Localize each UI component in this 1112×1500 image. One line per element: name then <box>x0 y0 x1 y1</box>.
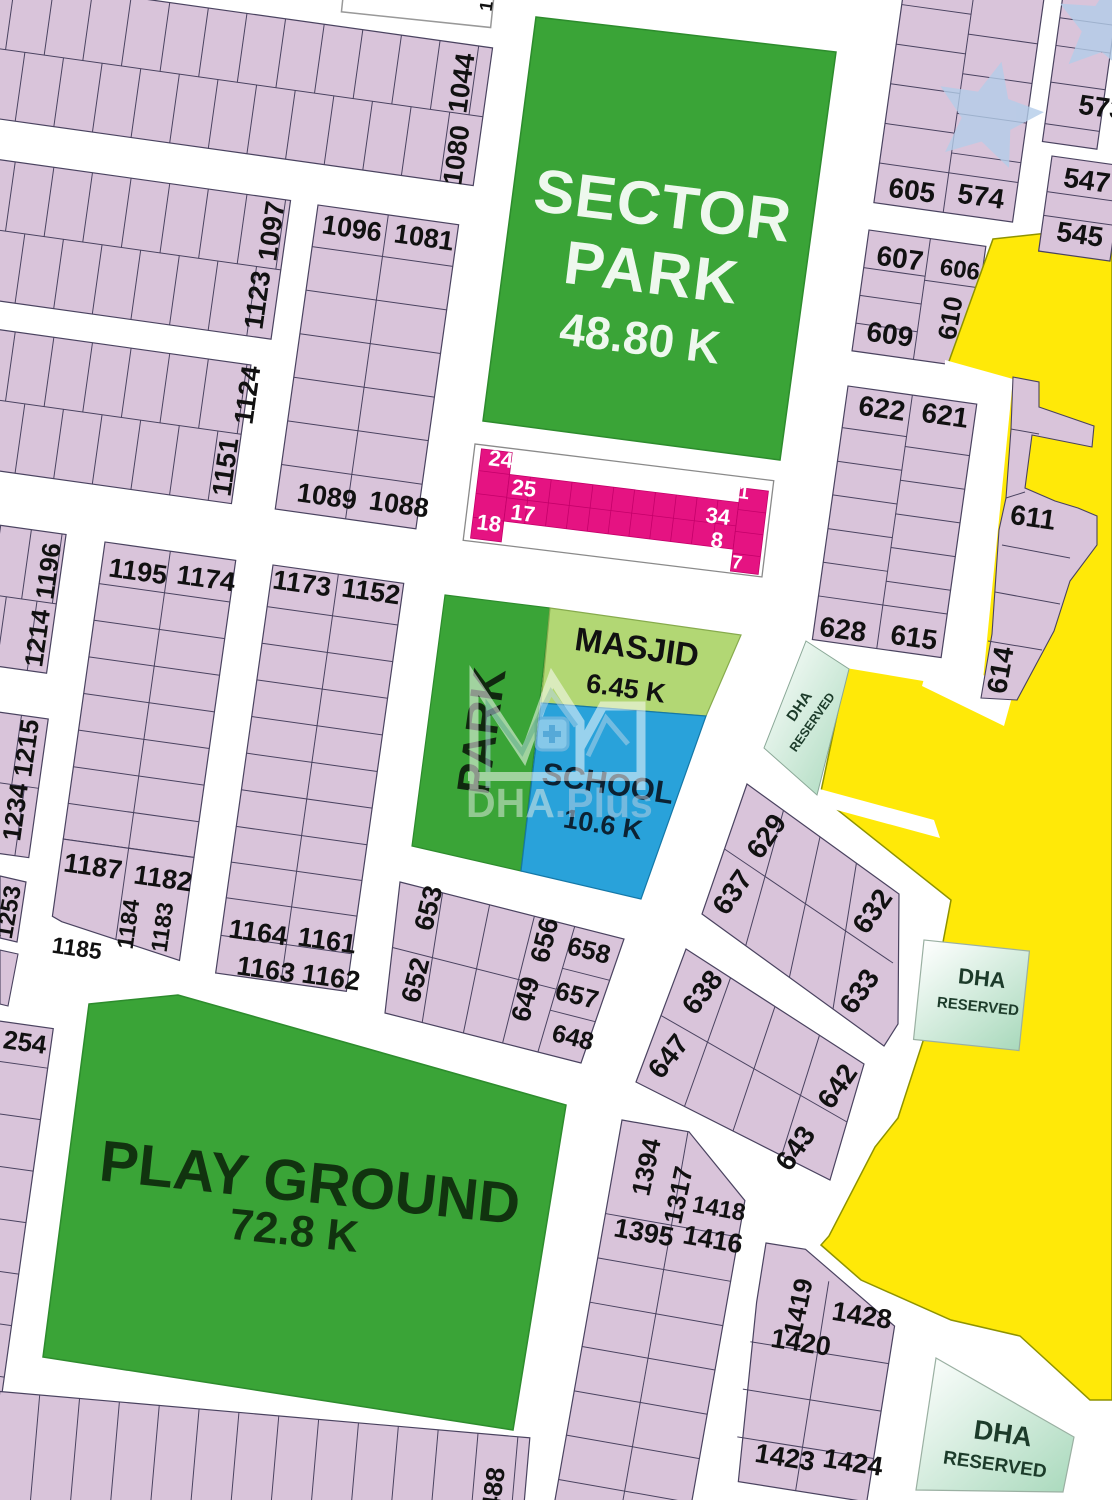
svg-text:606: 606 <box>938 254 981 286</box>
svg-text:607: 607 <box>875 240 926 277</box>
svg-text:611: 611 <box>1008 499 1057 536</box>
svg-text:DHA: DHA <box>957 963 1007 993</box>
svg-text:615: 615 <box>889 619 940 656</box>
svg-text:24: 24 <box>487 445 515 473</box>
svg-text:254: 254 <box>1 1024 49 1060</box>
svg-text:545: 545 <box>1055 216 1106 253</box>
svg-text:622: 622 <box>857 390 908 427</box>
svg-text:574: 574 <box>956 178 1007 215</box>
svg-text:628: 628 <box>818 611 869 648</box>
svg-text:18: 18 <box>475 509 502 537</box>
svg-text:547: 547 <box>1062 162 1112 199</box>
svg-text:609: 609 <box>865 316 916 353</box>
svg-text:34: 34 <box>704 502 732 530</box>
svg-text:621: 621 <box>920 397 971 434</box>
svg-text:605: 605 <box>887 172 938 209</box>
svg-text:DHA.Plus: DHA.Plus <box>466 780 653 826</box>
svg-text:17: 17 <box>509 499 536 527</box>
svg-text:25: 25 <box>510 474 537 502</box>
